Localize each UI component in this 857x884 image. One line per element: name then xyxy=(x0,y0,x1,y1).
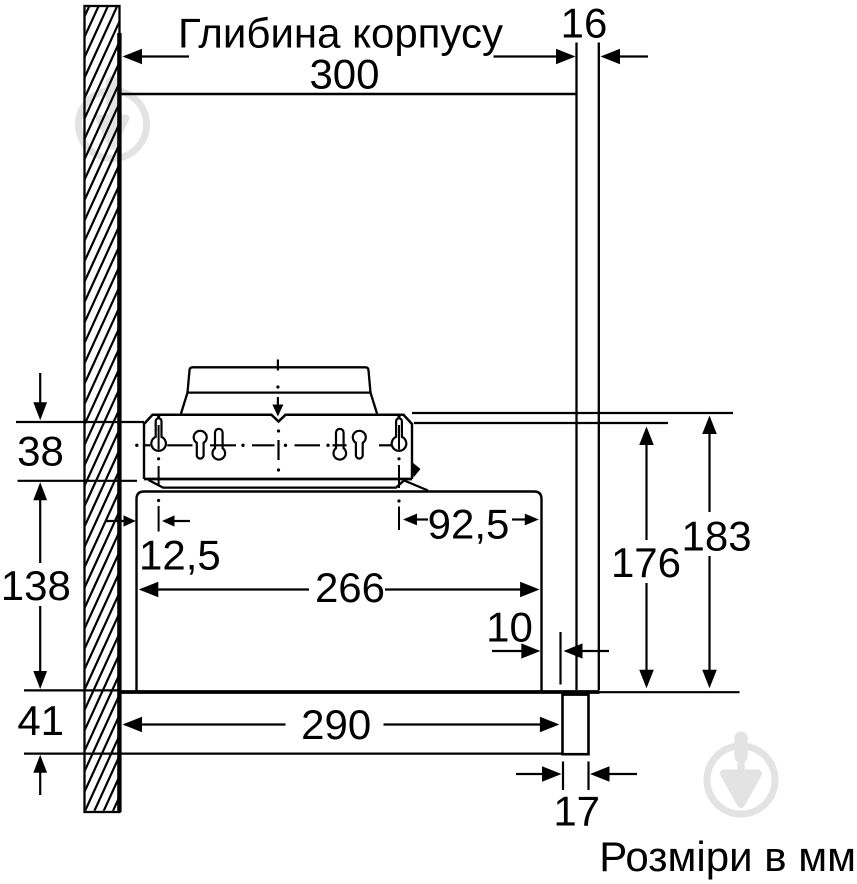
svg-text:92,5: 92,5 xyxy=(428,501,510,548)
svg-text:138: 138 xyxy=(1,562,71,609)
svg-text:41: 41 xyxy=(17,697,64,744)
svg-text:290: 290 xyxy=(301,701,371,748)
svg-text:38: 38 xyxy=(17,428,64,475)
svg-text:10: 10 xyxy=(486,604,533,651)
svg-text:183: 183 xyxy=(682,513,752,560)
svg-text:266: 266 xyxy=(315,564,385,611)
svg-text:Глибина корпусу: Глибина корпусу xyxy=(178,10,503,57)
svg-text:16: 16 xyxy=(561,0,608,47)
svg-text:12,5: 12,5 xyxy=(139,532,221,579)
svg-text:Розміри в мм: Розміри в мм xyxy=(599,833,856,880)
svg-text:17: 17 xyxy=(553,788,600,835)
svg-text:300: 300 xyxy=(309,51,379,98)
svg-text:176: 176 xyxy=(611,539,681,586)
